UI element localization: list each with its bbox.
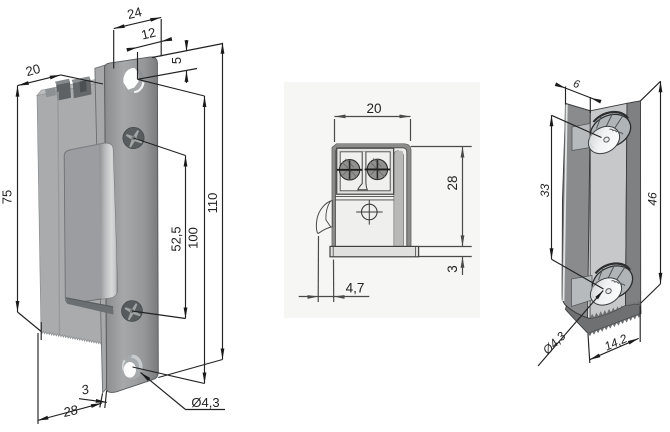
svg-text:52,5: 52,5	[169, 226, 184, 251]
svg-text:20: 20	[366, 101, 381, 116]
svg-text:Ø4,3: Ø4,3	[191, 395, 219, 410]
svg-text:110: 110	[205, 193, 220, 214]
svg-text:4,7: 4,7	[346, 281, 365, 296]
svg-text:33: 33	[538, 184, 552, 198]
svg-text:75: 75	[0, 190, 15, 204]
svg-text:28: 28	[445, 175, 460, 190]
svg-text:3: 3	[445, 265, 460, 273]
svg-text:5: 5	[169, 57, 184, 64]
svg-text:46: 46	[646, 192, 660, 206]
svg-text:100: 100	[186, 227, 201, 249]
